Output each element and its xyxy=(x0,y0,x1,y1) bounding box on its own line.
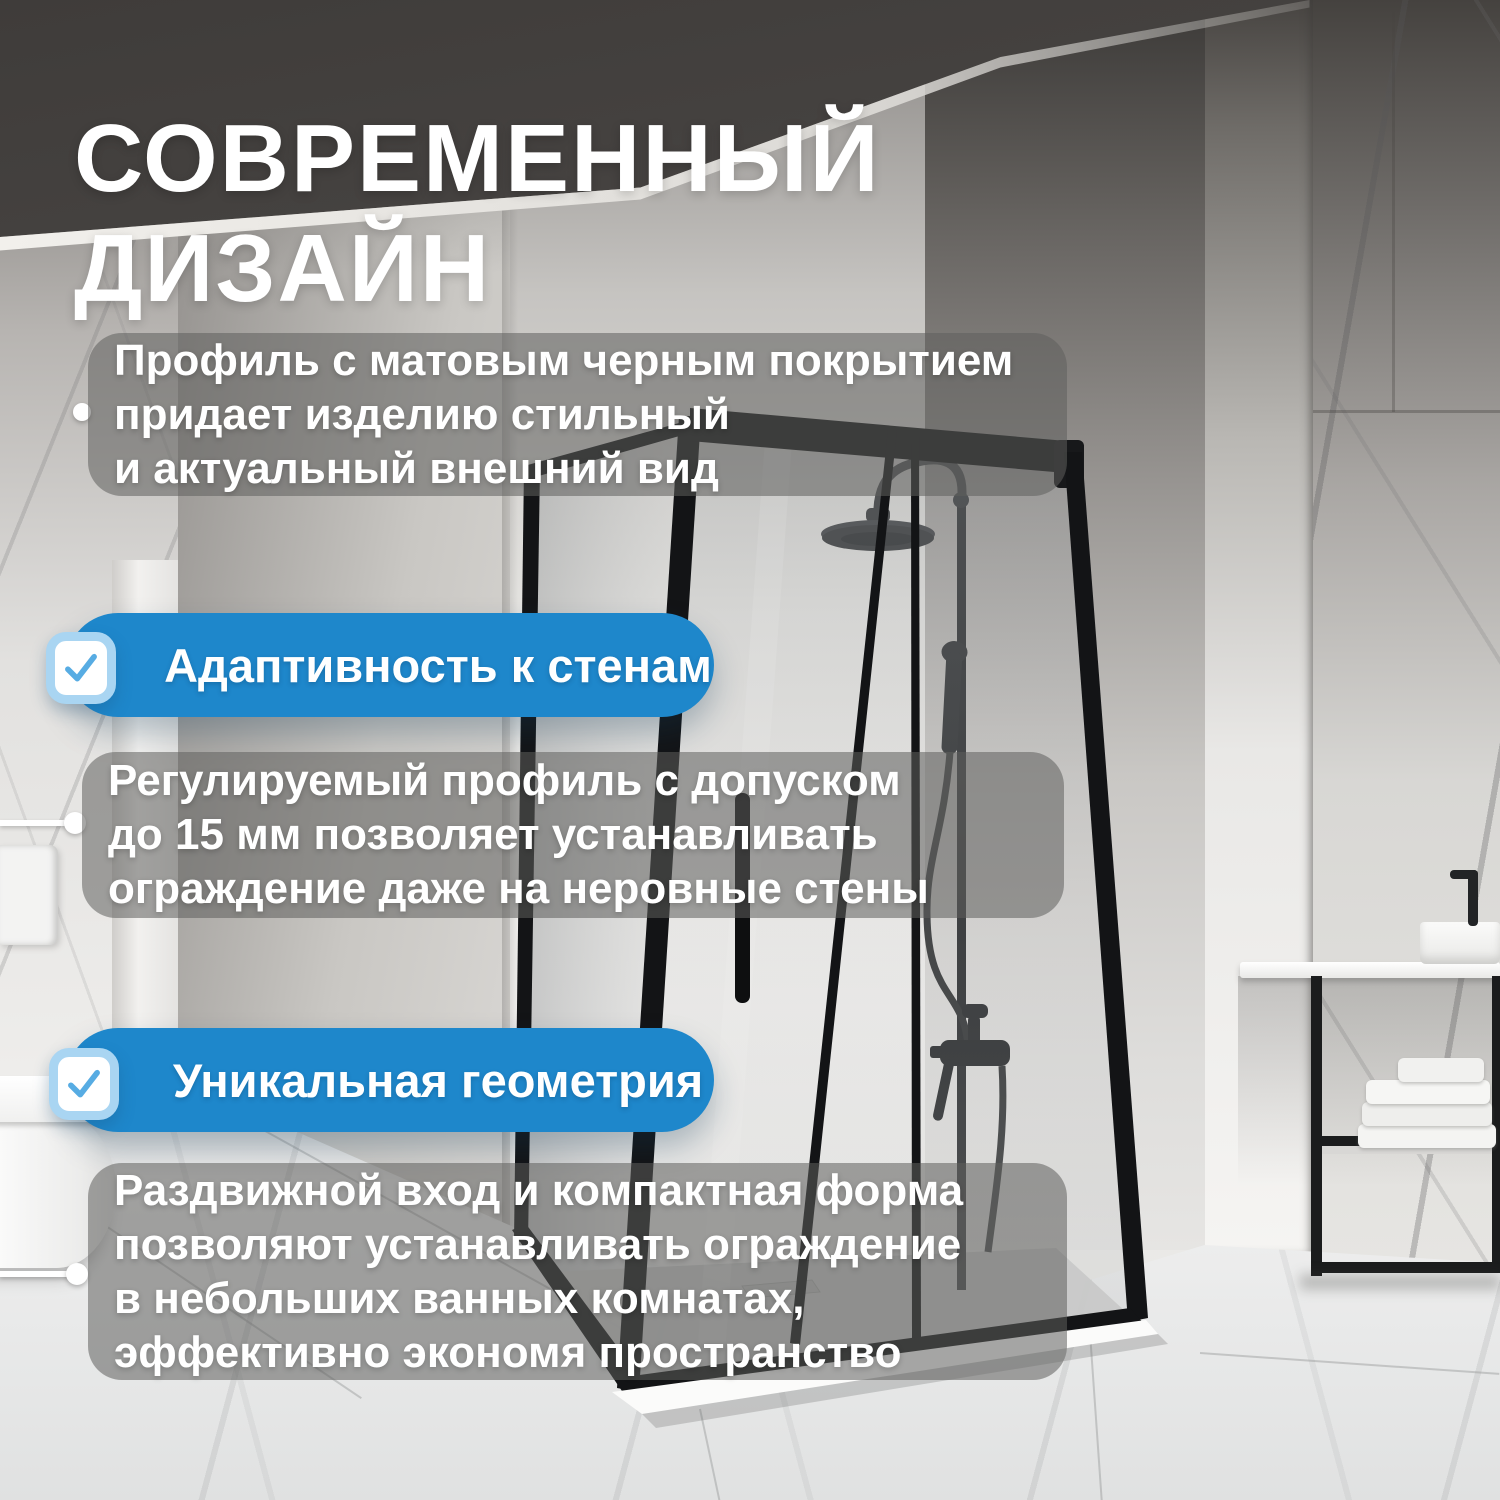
panel-text-line: Регулируемый профиль с допуском xyxy=(108,754,1038,808)
connector-line xyxy=(0,1271,72,1277)
feature-badge-adaptability: Адаптивность к стенам xyxy=(66,613,714,717)
badge-label: Уникальная геометрия xyxy=(173,1053,703,1108)
panel-text-line: и актуальный внешний вид xyxy=(114,442,1041,496)
connector-dot xyxy=(66,1263,88,1285)
product-infographic: СОВРЕМЕННЫЙ ДИЗАЙН Профиль с матовым чер… xyxy=(0,0,1500,1500)
checkbox xyxy=(49,1048,119,1120)
feature-text-panel: Профиль с матовым черным покрытием прида… xyxy=(88,333,1067,496)
title-line-1: СОВРЕМЕННЫЙ xyxy=(74,104,881,214)
checkmark-icon xyxy=(59,648,103,688)
checkbox xyxy=(46,632,116,704)
title-line-2: ДИЗАЙН xyxy=(74,214,881,324)
panel-text-line: Профиль с матовым черным покрытием xyxy=(114,334,1041,388)
panel-text-line: ограждение даже на неровные стены xyxy=(108,862,1038,916)
checkmark-icon xyxy=(62,1064,106,1104)
page-title: СОВРЕМЕННЫЙ ДИЗАЙН xyxy=(74,104,881,324)
feature-badge-geometry: Уникальная геометрия xyxy=(66,1028,714,1132)
panel-text-line: Раздвижной вход и компактная форма xyxy=(114,1164,1041,1218)
panel-text-line: до 15 мм позволяет устанавливать xyxy=(108,808,1038,862)
panel-text-line: позволяют устанавливать ограждение xyxy=(114,1218,1041,1272)
panel-text-line: в небольших ванных комнатах, xyxy=(114,1272,1041,1326)
feature-text-panel: Регулируемый профиль с допуском до 15 мм… xyxy=(82,752,1064,918)
panel-text-line: эффективно экономя пространство xyxy=(114,1326,1041,1380)
connector-line xyxy=(0,820,70,826)
badge-label: Адаптивность к стенам xyxy=(164,638,712,693)
feature-text-panel: Раздвижной вход и компактная форма позво… xyxy=(88,1163,1067,1380)
panel-text-line: придает изделию стильный xyxy=(114,388,1041,442)
